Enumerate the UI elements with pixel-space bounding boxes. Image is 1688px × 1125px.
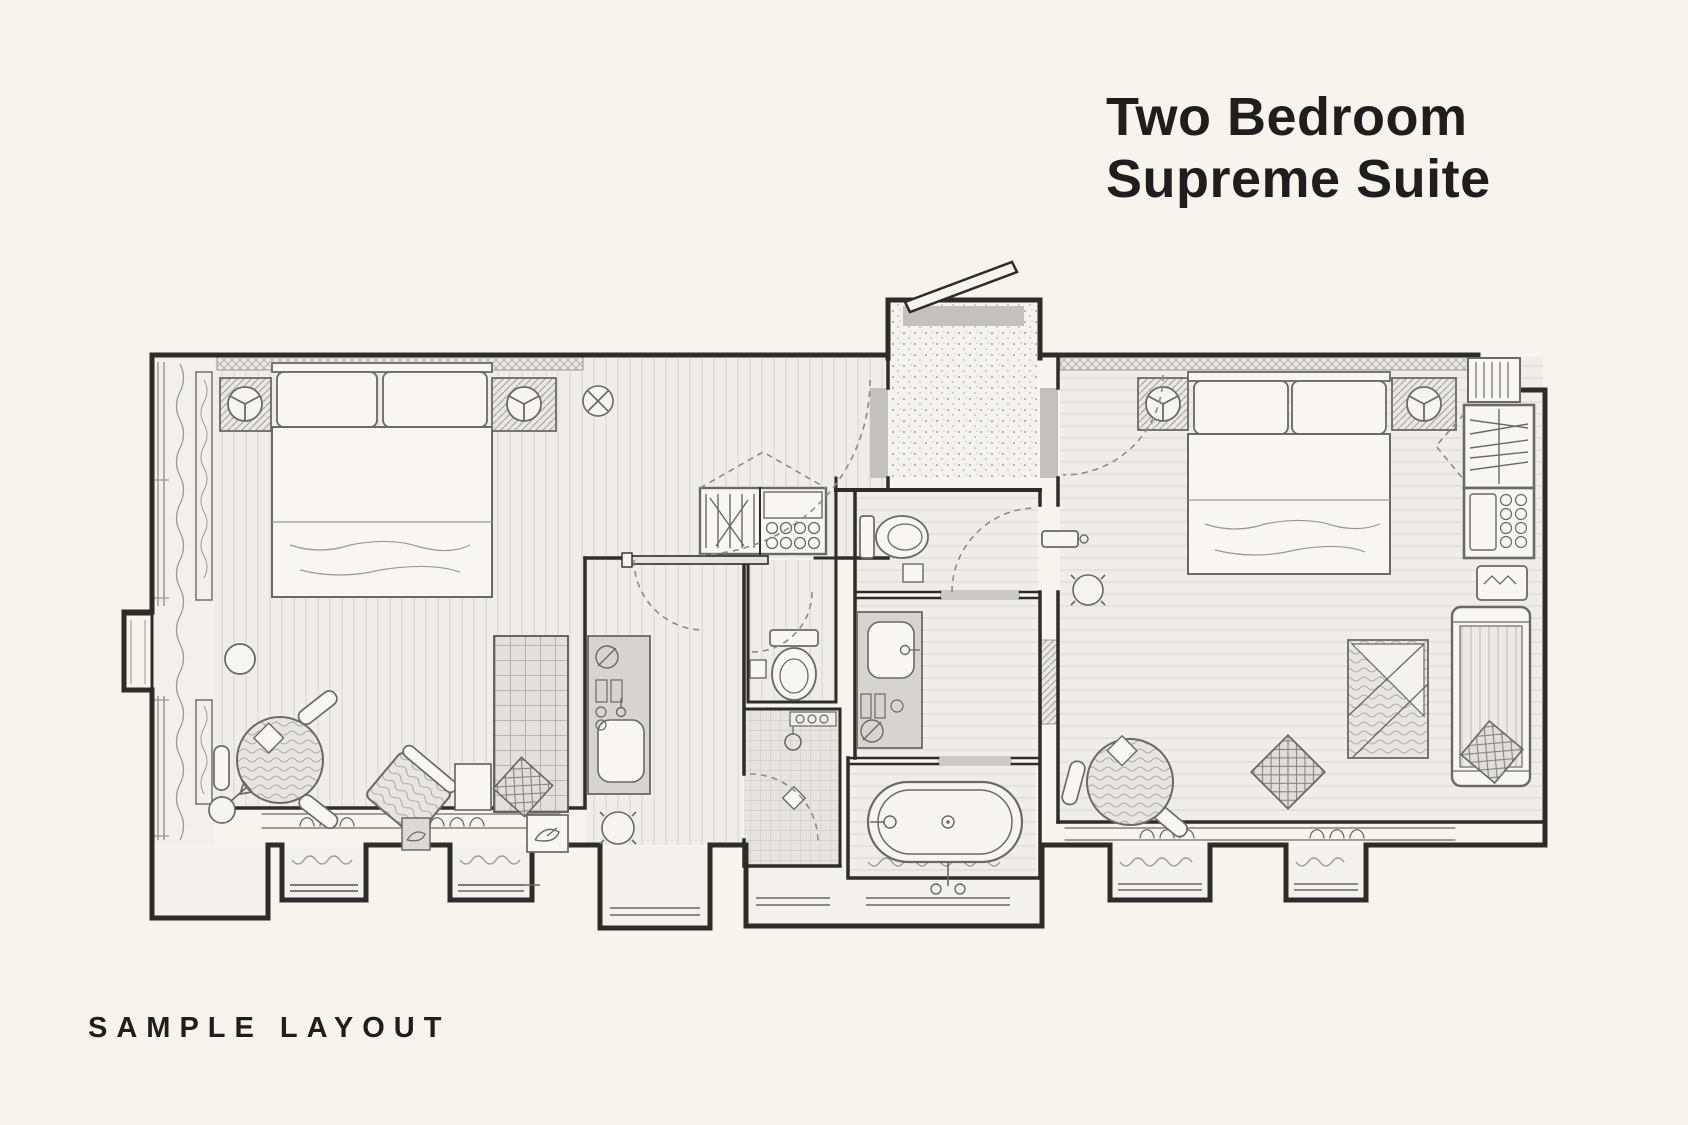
planter-box: [527, 815, 568, 852]
shower-shelf: [790, 712, 836, 726]
sink: [598, 720, 644, 782]
ceiling-light-icon: [583, 386, 613, 416]
screenshot-root: Two Bedroom Supreme Suite: [0, 0, 1688, 1125]
pillow: [277, 372, 377, 427]
toilet-tank: [770, 630, 818, 646]
door-leaf: [1042, 531, 1078, 547]
side-table: [455, 764, 491, 810]
sample-layout-label: SAMPLE LAYOUT: [88, 1012, 450, 1045]
pillow: [383, 372, 487, 427]
chaise: [1348, 640, 1428, 758]
toilet-bowl: [876, 516, 928, 558]
closet-shelf: [764, 492, 822, 518]
sliding-door: [630, 556, 768, 564]
headboard: [1188, 372, 1390, 381]
threshold-left: [870, 388, 888, 478]
planter-box-small: [402, 818, 430, 850]
sofa: [1452, 607, 1530, 786]
headboard: [272, 363, 492, 372]
side-lamp: [225, 644, 255, 674]
sink: [868, 622, 914, 678]
floor-plan: [0, 0, 1688, 1125]
threshold-right: [1040, 388, 1058, 478]
bed-right: [1188, 434, 1390, 574]
room-shower: [744, 709, 840, 866]
toilet-tank: [860, 516, 874, 558]
toilet-bowl: [772, 648, 816, 700]
pillow: [1292, 381, 1386, 434]
chair: [214, 746, 229, 790]
pillow: [1194, 381, 1288, 434]
